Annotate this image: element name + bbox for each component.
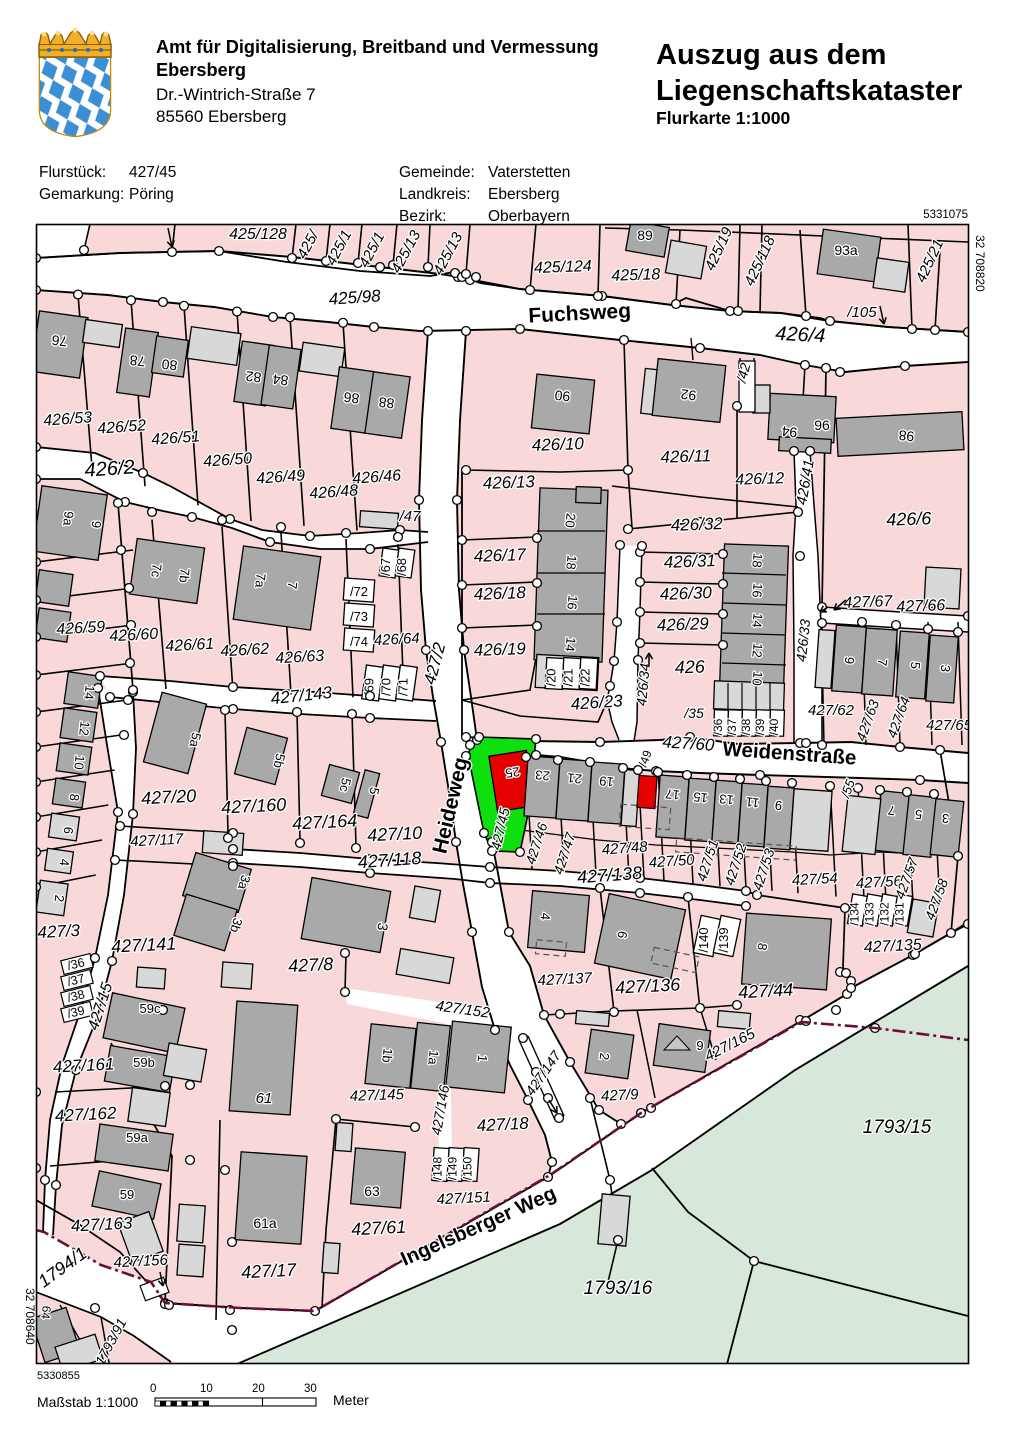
svg-text:78: 78 xyxy=(129,352,146,370)
svg-text:7a: 7a xyxy=(252,572,269,589)
svg-text:426/18: 426/18 xyxy=(473,583,526,604)
svg-text:426/4: 426/4 xyxy=(775,323,826,348)
svg-text:85560 Ebersberg: 85560 Ebersberg xyxy=(156,107,286,126)
svg-text:427/10: 427/10 xyxy=(367,823,423,846)
svg-text:426/13: 426/13 xyxy=(482,472,535,493)
svg-text:25: 25 xyxy=(504,764,520,781)
svg-text:/40: /40 xyxy=(767,718,781,735)
svg-text:426/50: 426/50 xyxy=(203,450,253,470)
svg-text:/105: /105 xyxy=(846,304,877,321)
svg-text:427/17: 427/17 xyxy=(241,1260,298,1283)
svg-text:426/62: 426/62 xyxy=(220,641,270,661)
svg-text:426/61: 426/61 xyxy=(165,636,215,656)
svg-text:427/162: 427/162 xyxy=(55,1103,118,1125)
svg-text:32 708640: 32 708640 xyxy=(23,1288,37,1345)
svg-text:Pöring: Pöring xyxy=(129,186,174,203)
svg-text:Bezirk:: Bezirk: xyxy=(399,208,446,225)
svg-text:9: 9 xyxy=(842,656,858,665)
svg-text:59c: 59c xyxy=(140,1001,161,1016)
svg-text:1793/16: 1793/16 xyxy=(584,1278,653,1299)
svg-text:/68: /68 xyxy=(394,558,409,576)
svg-text:11: 11 xyxy=(745,794,760,810)
svg-text:1: 1 xyxy=(475,1054,491,1063)
svg-text:427/48: 427/48 xyxy=(601,838,649,858)
svg-text:426/6: 426/6 xyxy=(886,508,933,530)
svg-text:Dr.-Wintrich-Straße 7: Dr.-Wintrich-Straße 7 xyxy=(156,85,316,104)
svg-text:/47: /47 xyxy=(399,508,422,525)
svg-text:82: 82 xyxy=(245,368,262,386)
svg-text:61a: 61a xyxy=(253,1215,277,1231)
svg-text:/134: /134 xyxy=(848,902,862,926)
svg-text:15: 15 xyxy=(693,789,709,805)
svg-text:426/31: 426/31 xyxy=(663,551,716,572)
svg-text:425/18: 425/18 xyxy=(611,266,661,285)
svg-text:/132: /132 xyxy=(878,902,892,926)
svg-text:/140: /140 xyxy=(696,927,711,952)
svg-text:/148: /148 xyxy=(431,1156,445,1180)
svg-text:13: 13 xyxy=(719,791,735,807)
svg-text:427/135: 427/135 xyxy=(863,936,922,956)
svg-text:427/9: 427/9 xyxy=(601,1086,640,1105)
svg-text:427/50: 427/50 xyxy=(648,851,696,871)
svg-text:/149: /149 xyxy=(446,1156,460,1180)
svg-text:Liegenschaftskataster: Liegenschaftskataster xyxy=(656,75,962,107)
svg-text:426/2: 426/2 xyxy=(84,456,135,481)
svg-text:7: 7 xyxy=(285,581,301,590)
svg-text:426/52: 426/52 xyxy=(97,417,147,437)
svg-text:14: 14 xyxy=(749,612,765,628)
svg-text:427/3: 427/3 xyxy=(37,921,81,942)
svg-text:426/29: 426/29 xyxy=(656,614,709,635)
svg-text:2: 2 xyxy=(597,1052,613,1061)
svg-text:427/164: 427/164 xyxy=(292,810,358,833)
svg-text:1793/15: 1793/15 xyxy=(863,1117,932,1138)
svg-text:426/63: 426/63 xyxy=(275,648,325,668)
svg-text:/39: /39 xyxy=(753,718,767,735)
svg-text:64: 64 xyxy=(38,1305,53,1320)
svg-text:12: 12 xyxy=(76,720,92,736)
svg-text:59a: 59a xyxy=(126,1130,148,1145)
svg-text:80: 80 xyxy=(161,356,178,374)
svg-text:16: 16 xyxy=(564,594,580,610)
svg-text:2: 2 xyxy=(52,894,68,903)
svg-text:426/46: 426/46 xyxy=(352,467,402,487)
svg-text:427/156: 427/156 xyxy=(113,1252,169,1272)
svg-text:Ebersberg: Ebersberg xyxy=(156,60,246,80)
svg-text:9a: 9a xyxy=(60,510,77,527)
svg-text:427/145: 427/145 xyxy=(349,1086,404,1105)
svg-text:14: 14 xyxy=(81,684,97,700)
svg-text:427/44: 427/44 xyxy=(738,980,794,1003)
svg-text:427/62: 427/62 xyxy=(808,702,855,719)
svg-text:9: 9 xyxy=(696,1038,703,1053)
svg-text:63: 63 xyxy=(364,1183,380,1199)
svg-text:14: 14 xyxy=(562,636,578,652)
svg-text:/70: /70 xyxy=(379,678,394,696)
svg-text:427/151: 427/151 xyxy=(436,1189,491,1209)
svg-text:427/163: 427/163 xyxy=(71,1213,134,1235)
svg-text:59b: 59b xyxy=(133,1055,155,1070)
svg-text:4: 4 xyxy=(538,912,554,921)
svg-text:/22: /22 xyxy=(578,668,593,686)
svg-text:0: 0 xyxy=(150,1383,156,1395)
svg-text:Meter: Meter xyxy=(333,1392,369,1408)
svg-text:93a: 93a xyxy=(834,242,858,258)
svg-text:426/59: 426/59 xyxy=(56,619,106,639)
svg-text:426/11: 426/11 xyxy=(660,446,711,467)
svg-text:426/60: 426/60 xyxy=(109,626,159,646)
svg-text:19: 19 xyxy=(599,773,615,789)
svg-text:94: 94 xyxy=(781,423,798,441)
svg-text:23: 23 xyxy=(535,767,551,783)
svg-text:8: 8 xyxy=(67,793,83,802)
svg-text:7: 7 xyxy=(875,658,891,667)
svg-text:5b: 5b xyxy=(271,752,289,769)
svg-text:427/137: 427/137 xyxy=(537,970,593,990)
svg-text:/72: /72 xyxy=(350,584,368,599)
svg-text:86: 86 xyxy=(343,389,360,407)
svg-text:427/20: 427/20 xyxy=(141,786,197,809)
svg-text:Oberbayern: Oberbayern xyxy=(488,208,570,225)
svg-text:/35: /35 xyxy=(683,705,704,721)
svg-text:425/98: 425/98 xyxy=(328,286,382,309)
svg-text:18: 18 xyxy=(749,552,765,568)
svg-text:427/141: 427/141 xyxy=(111,933,177,956)
svg-text:76: 76 xyxy=(51,332,68,350)
svg-text:Landkreis:: Landkreis: xyxy=(399,186,471,203)
svg-text:426/30: 426/30 xyxy=(659,583,712,604)
svg-text:427/161: 427/161 xyxy=(53,1054,115,1076)
svg-text:Amt für Digitalisierung, Breit: Amt für Digitalisierung, Breitband und V… xyxy=(156,37,599,57)
svg-text:427/160: 427/160 xyxy=(221,794,287,817)
svg-text:/139: /139 xyxy=(716,927,731,952)
svg-text:88: 88 xyxy=(378,394,395,412)
svg-text:/133: /133 xyxy=(863,902,877,926)
svg-text:427/117: 427/117 xyxy=(130,831,185,851)
svg-text:3: 3 xyxy=(938,664,954,673)
svg-text:21: 21 xyxy=(567,770,583,786)
svg-text:6: 6 xyxy=(61,826,77,835)
svg-text:427/60: 427/60 xyxy=(662,732,716,755)
svg-text:Auszug aus dem: Auszug aus dem xyxy=(656,39,886,71)
svg-text:12: 12 xyxy=(749,642,765,658)
svg-text:Flurstück:: Flurstück: xyxy=(39,164,106,181)
svg-text:426/53: 426/53 xyxy=(43,409,93,429)
svg-text:427/65: 427/65 xyxy=(926,717,973,734)
svg-text:426/17: 426/17 xyxy=(473,545,526,566)
svg-text:61: 61 xyxy=(256,1090,273,1107)
svg-text:98: 98 xyxy=(898,427,915,445)
svg-text:4: 4 xyxy=(57,858,73,867)
svg-text:5: 5 xyxy=(914,807,923,823)
svg-text:1b: 1b xyxy=(379,1047,395,1063)
svg-text:7c: 7c xyxy=(148,563,164,579)
svg-text:20: 20 xyxy=(562,512,578,528)
svg-text:9: 9 xyxy=(774,798,783,814)
svg-text:426/51: 426/51 xyxy=(151,428,201,448)
svg-text:89: 89 xyxy=(637,227,653,243)
svg-text:/150: /150 xyxy=(461,1156,475,1180)
svg-text:Maßstab 1:1000: Maßstab 1:1000 xyxy=(37,1394,138,1410)
svg-text:/38: /38 xyxy=(739,718,753,735)
svg-text:427/8: 427/8 xyxy=(288,954,334,976)
svg-text:426/32: 426/32 xyxy=(670,514,723,535)
svg-text:426/64: 426/64 xyxy=(373,630,420,649)
svg-text:427/18: 427/18 xyxy=(476,1114,529,1136)
svg-text:/67: /67 xyxy=(378,558,393,576)
svg-text:3: 3 xyxy=(941,811,950,827)
svg-text:425/124: 425/124 xyxy=(534,258,592,277)
svg-text:426: 426 xyxy=(674,656,706,677)
svg-text:427/66: 427/66 xyxy=(896,597,946,616)
svg-text:/74: /74 xyxy=(350,634,368,649)
svg-text:84: 84 xyxy=(272,371,289,389)
svg-text:426/19: 426/19 xyxy=(473,639,526,660)
svg-text:/21: /21 xyxy=(561,668,576,686)
svg-text:7b: 7b xyxy=(176,567,192,583)
svg-text:Ebersberg: Ebersberg xyxy=(488,186,560,203)
svg-text:/71: /71 xyxy=(396,678,411,696)
svg-text:426/48: 426/48 xyxy=(309,482,359,502)
svg-text:20: 20 xyxy=(252,1383,265,1395)
svg-text:18: 18 xyxy=(563,554,579,570)
svg-text:426/49: 426/49 xyxy=(256,467,306,487)
svg-text:Flurkarte 1:1000: Flurkarte 1:1000 xyxy=(656,108,791,128)
svg-text:/131: /131 xyxy=(893,902,907,926)
svg-text:/37: /37 xyxy=(725,718,739,735)
svg-text:30: 30 xyxy=(304,1383,317,1395)
svg-text:425/128: 425/128 xyxy=(229,226,287,243)
svg-text:Gemarkung:: Gemarkung: xyxy=(39,186,124,203)
svg-text:427/136: 427/136 xyxy=(615,974,682,997)
svg-text:426/12: 426/12 xyxy=(735,470,785,489)
svg-text:427/45: 427/45 xyxy=(129,164,176,181)
svg-text:427/61: 427/61 xyxy=(351,1217,407,1240)
svg-text:/36: /36 xyxy=(711,718,725,735)
svg-text:96: 96 xyxy=(814,417,830,433)
svg-text:90: 90 xyxy=(554,387,571,405)
svg-text:9: 9 xyxy=(89,520,105,529)
svg-text:1a: 1a xyxy=(425,1049,442,1066)
svg-text:32 708820: 32 708820 xyxy=(973,235,987,292)
svg-text:5331075: 5331075 xyxy=(923,209,968,221)
svg-text:17: 17 xyxy=(665,786,681,802)
svg-text:Vaterstetten: Vaterstetten xyxy=(488,164,570,181)
svg-text:426/23: 426/23 xyxy=(570,691,624,714)
svg-text:5: 5 xyxy=(908,661,924,670)
svg-text:92: 92 xyxy=(680,386,697,404)
svg-text:427/67: 427/67 xyxy=(843,593,894,612)
svg-text:10: 10 xyxy=(200,1383,213,1395)
svg-text:/73: /73 xyxy=(350,609,368,624)
svg-text:Gemeinde:: Gemeinde: xyxy=(399,164,475,181)
svg-text:10: 10 xyxy=(71,754,87,770)
svg-text:10: 10 xyxy=(749,670,765,686)
svg-text:59: 59 xyxy=(120,1187,134,1202)
svg-text:5330855: 5330855 xyxy=(37,1370,80,1382)
svg-text:427/54: 427/54 xyxy=(791,870,838,889)
svg-text:16: 16 xyxy=(749,582,765,598)
svg-text:7: 7 xyxy=(887,803,896,819)
svg-text:/20: /20 xyxy=(544,668,559,686)
svg-text:426/10: 426/10 xyxy=(531,434,584,455)
